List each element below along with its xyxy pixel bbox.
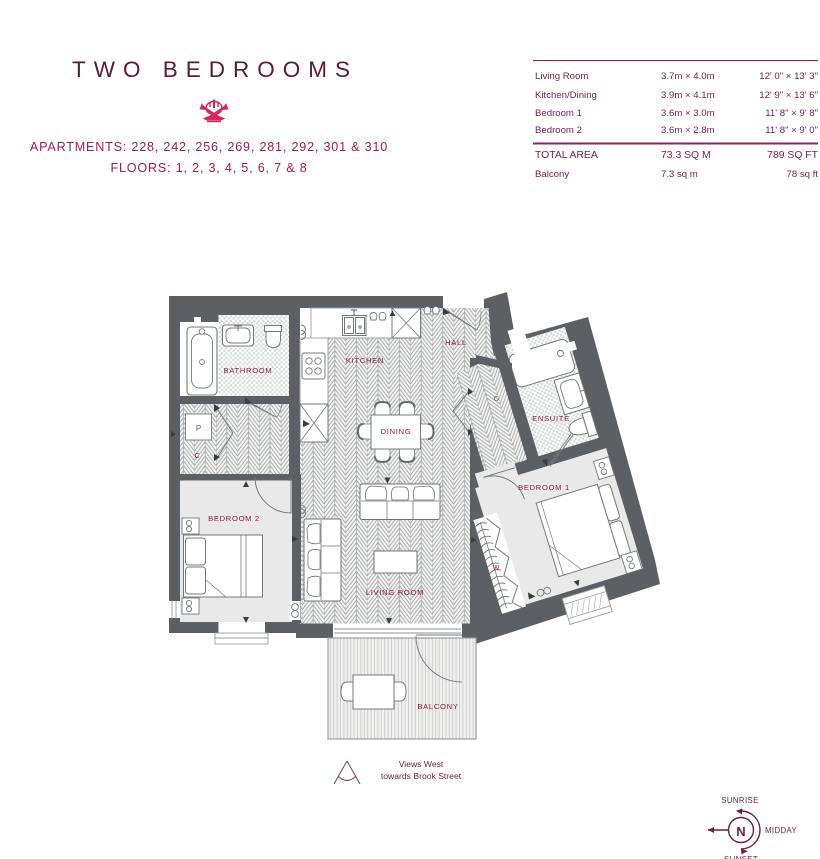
- svg-text:N: N: [736, 824, 745, 839]
- svg-text:12' 9" × 13' 6": 12' 9" × 13' 6": [759, 90, 818, 101]
- svg-text:7.3 sq m: 7.3 sq m: [661, 169, 698, 180]
- svg-text:MIDDAY: MIDDAY: [765, 826, 798, 835]
- svg-text:Bedroom 1: Bedroom 1: [535, 108, 582, 119]
- svg-text:SUNSET: SUNSET: [724, 855, 758, 859]
- svg-text:W: W: [493, 565, 500, 572]
- svg-text:FLOORS: 1, 2, 3, 4, 5, 6, 7 &: FLOORS: 1, 2, 3, 4, 5, 6, 7 & 8: [111, 161, 308, 175]
- svg-text:3.6m × 2.8m: 3.6m × 2.8m: [661, 125, 715, 136]
- svg-text:73.3 SQ M: 73.3 SQ M: [661, 150, 711, 161]
- svg-text:Bedroom 2: Bedroom 2: [535, 125, 582, 136]
- svg-text:3.6m × 3.0m: 3.6m × 3.0m: [661, 108, 715, 119]
- svg-text:LIVING ROOM: LIVING ROOM: [366, 588, 424, 597]
- svg-text:11' 8" × 9' 0": 11' 8" × 9' 0": [765, 125, 818, 136]
- svg-text:12' 0" × 13' 3": 12' 0" × 13' 3": [759, 71, 818, 82]
- svg-text:789 SQ FT: 789 SQ FT: [767, 150, 818, 161]
- svg-text:Views West: Views West: [399, 759, 444, 769]
- svg-text:towards Brook Street: towards Brook Street: [381, 771, 462, 781]
- svg-text:78 sq ft: 78 sq ft: [787, 169, 819, 180]
- svg-text:DINING: DINING: [381, 427, 412, 436]
- svg-text:BEDROOM 2: BEDROOM 2: [208, 514, 260, 523]
- svg-text:BALCONY: BALCONY: [417, 702, 458, 711]
- svg-text:SUNRISE: SUNRISE: [721, 796, 758, 805]
- svg-text:3.9m × 4.1m: 3.9m × 4.1m: [661, 90, 715, 101]
- svg-text:BEDROOM 1: BEDROOM 1: [518, 483, 570, 492]
- svg-text:Kitchen/Dining: Kitchen/Dining: [535, 90, 597, 101]
- svg-text:APARTMENTS: 228, 242, 256, 269: APARTMENTS: 228, 242, 256, 269, 281, 292…: [30, 140, 388, 154]
- svg-text:3.7m × 4.0m: 3.7m × 4.0m: [661, 71, 715, 82]
- svg-text:Balcony: Balcony: [535, 169, 569, 180]
- svg-text:ENSUITE: ENSUITE: [532, 414, 570, 423]
- svg-text:C: C: [194, 453, 199, 460]
- svg-text:KITCHEN: KITCHEN: [346, 356, 384, 365]
- svg-text:11' 8" × 9' 8": 11' 8" × 9' 8": [765, 108, 818, 119]
- svg-text:P: P: [196, 424, 201, 433]
- svg-text:HALL: HALL: [445, 338, 467, 347]
- svg-text:TOTAL AREA: TOTAL AREA: [535, 150, 598, 161]
- svg-text:BATHROOM: BATHROOM: [224, 366, 273, 375]
- svg-text:TWO BEDROOMS: TWO BEDROOMS: [72, 57, 358, 82]
- svg-text:Living Room: Living Room: [535, 71, 588, 82]
